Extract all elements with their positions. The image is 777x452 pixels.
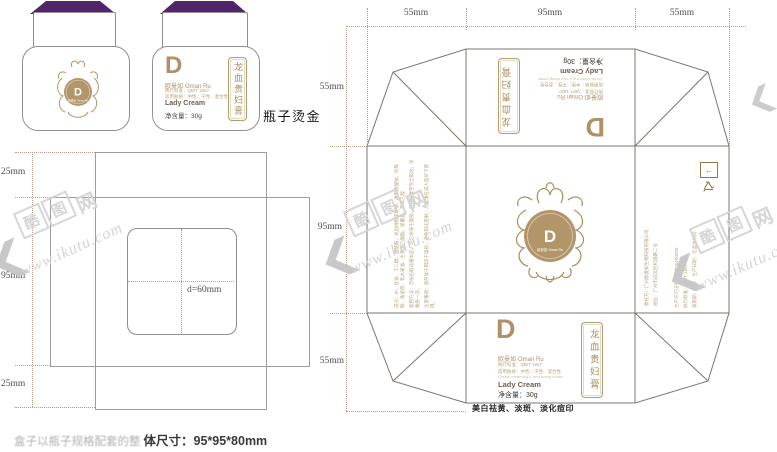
center-crown-logo: D 欧曼如·Oman Ru xyxy=(506,176,594,288)
center-monogram-d: D xyxy=(544,227,556,246)
right-panel-line: 保质期：三年 生产日期：见盒体喷码 xyxy=(692,190,698,308)
flap-fine-print-3: Gentle whitening & nourishing cream xyxy=(538,77,603,82)
box-right-panel-text-a: 委托方：广州欧曼如生物科技有限公司 地址：广州市白云区机场路二号 xyxy=(644,190,668,306)
box-size-note: 盒子以瓶子规格配套的整 体尺寸：95*95*80mm xyxy=(14,430,267,449)
box-top-flap-artwork: D 欧曼如·Oman Ru 执行标准：QB/T 1857 适用肤质：中性、干性、… xyxy=(466,52,635,144)
box-dim-top-3: 55mm xyxy=(662,8,702,18)
box-bottom-flap-artwork: D 欧曼如·Oman Ru 执行标准：QB/T 1857 适用肤质：中性、干性、… xyxy=(466,312,635,404)
size-note-dimensions: 体尺寸：95*95*80mm xyxy=(144,430,268,449)
flap-product-en: Lady Cream xyxy=(560,67,603,76)
box-dim-left-3: 55mm xyxy=(314,356,344,366)
flap-brand-line: 欧曼如·Oman Ru xyxy=(557,93,603,102)
flap-product-name-box: 龙血贵妇膏 xyxy=(581,322,603,398)
flap-net-weight: 净含量：30g xyxy=(498,390,538,400)
packaging-design-canvas: D 欧曼如·Oman Ru D 欧曼如·Oman Ru 执行标准：QB/T 18… xyxy=(0,0,777,452)
benefit-line: 美白祛黄、淡斑、淡化痘印 xyxy=(448,403,598,414)
box-dim-left-2: 95mm xyxy=(312,222,342,232)
center-circle-brand-text: 欧曼如·Oman Ru xyxy=(537,247,563,252)
flap-product-name-vertical: 龙血贵妇膏 xyxy=(504,65,514,128)
flap-fine-print-1: 执行标准：QB/T 1857 xyxy=(559,88,603,94)
right-panel-line: 委托方：广州欧曼如生物科技有限公司 xyxy=(644,190,650,306)
flap-fine-print-1: 执行标准：QB/T 1857 xyxy=(498,362,542,368)
flap-product-name-vertical: 龙血贵妇膏 xyxy=(587,329,597,392)
flap-net-weight: 净含量：30g xyxy=(563,56,603,66)
green-mark-icon: ← xyxy=(700,162,718,178)
right-panel-line: 地址：广州市白云区机场路二号 xyxy=(653,190,659,306)
box-right-panel-text-b: 生产许可证号：粤妆20160025 执行标准：QB/T 1857 保质期：三年 … xyxy=(674,190,698,308)
recycle-icon xyxy=(701,180,716,195)
box-dim-top-1: 55mm xyxy=(396,8,436,18)
left-panel-line: 注意事项：请存放于阴凉干燥处，避免阳光直射；儿童请在成人监护下使用。 xyxy=(424,156,436,308)
size-note-faint-prefix: 盒子以瓶子规格配套的整 xyxy=(14,433,141,449)
flap-product-name-box: 龙血贵妇膏 xyxy=(498,58,520,134)
box-dim-top-2: 95mm xyxy=(530,8,570,18)
box-left-panel-text: 成分：水、甘油、丁二醇、烟酰胺、龙血树脂提取物、透明质酸钠、珍珠粉、角鲨烷、乳木… xyxy=(394,156,454,308)
flap-monogram-d: D xyxy=(586,111,606,142)
right-panel-line: 生产许可证号：粤妆20160025 xyxy=(674,190,680,308)
box-dim-left-1: 55mm xyxy=(314,82,344,92)
flap-monogram-d: D xyxy=(496,314,516,345)
flap-product-en: Lady Cream xyxy=(498,380,541,389)
right-panel-line: 执行标准：QB/T 1857 xyxy=(683,190,689,308)
flap-fine-print-3: Gentle whitening & nourishing cream xyxy=(498,374,563,379)
flap-fine-print-2: 适用肤质：中性、干性、混合性 xyxy=(540,82,603,88)
left-panel-line: 使用方法：洁肤后取适量本品，均匀涂抹于面部，轻轻按摩至完全吸收，早晚各一次。 xyxy=(409,156,421,308)
left-panel-line: 成分：水、甘油、丁二醇、烟酰胺、龙血树脂提取物、透明质酸钠、珍珠粉、角鲨烷、乳木… xyxy=(394,156,406,308)
